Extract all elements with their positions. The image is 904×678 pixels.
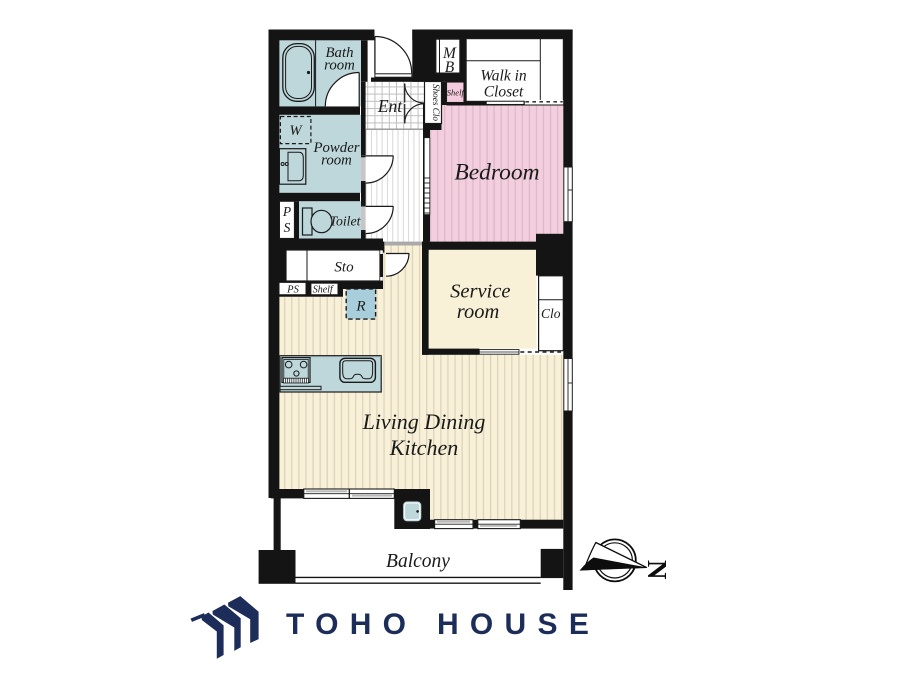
svg-text:N: N — [642, 560, 672, 580]
svg-text:Walk in: Walk in — [480, 68, 527, 85]
svg-text:Toilet: Toilet — [330, 214, 362, 229]
svg-text:Sto: Sto — [334, 260, 354, 276]
svg-text:room: room — [324, 58, 355, 74]
svg-text:W: W — [289, 123, 303, 139]
svg-text:Kitchen: Kitchen — [389, 435, 458, 460]
svg-text:TOHO HOUSE: TOHO HOUSE — [286, 608, 600, 641]
svg-text:Ent: Ent — [377, 96, 403, 116]
svg-text:Shoes Clo: Shoes Clo — [431, 84, 441, 121]
svg-text:Balcony: Balcony — [386, 551, 450, 572]
svg-text:Shelf: Shelf — [313, 285, 334, 296]
svg-text:Shelf: Shelf — [447, 88, 466, 98]
svg-text:Clo: Clo — [541, 306, 561, 321]
svg-text:Closet: Closet — [484, 84, 524, 101]
svg-text:P: P — [282, 204, 291, 219]
svg-text:room: room — [457, 301, 500, 323]
svg-text:Living Dining: Living Dining — [362, 409, 486, 434]
svg-text:Bedroom: Bedroom — [454, 160, 539, 186]
svg-text:Service: Service — [450, 281, 510, 303]
svg-text:PS: PS — [286, 285, 299, 296]
svg-text:B: B — [445, 59, 455, 76]
svg-text:R: R — [355, 299, 365, 315]
svg-text:S: S — [284, 220, 291, 235]
svg-text:room: room — [321, 153, 352, 169]
